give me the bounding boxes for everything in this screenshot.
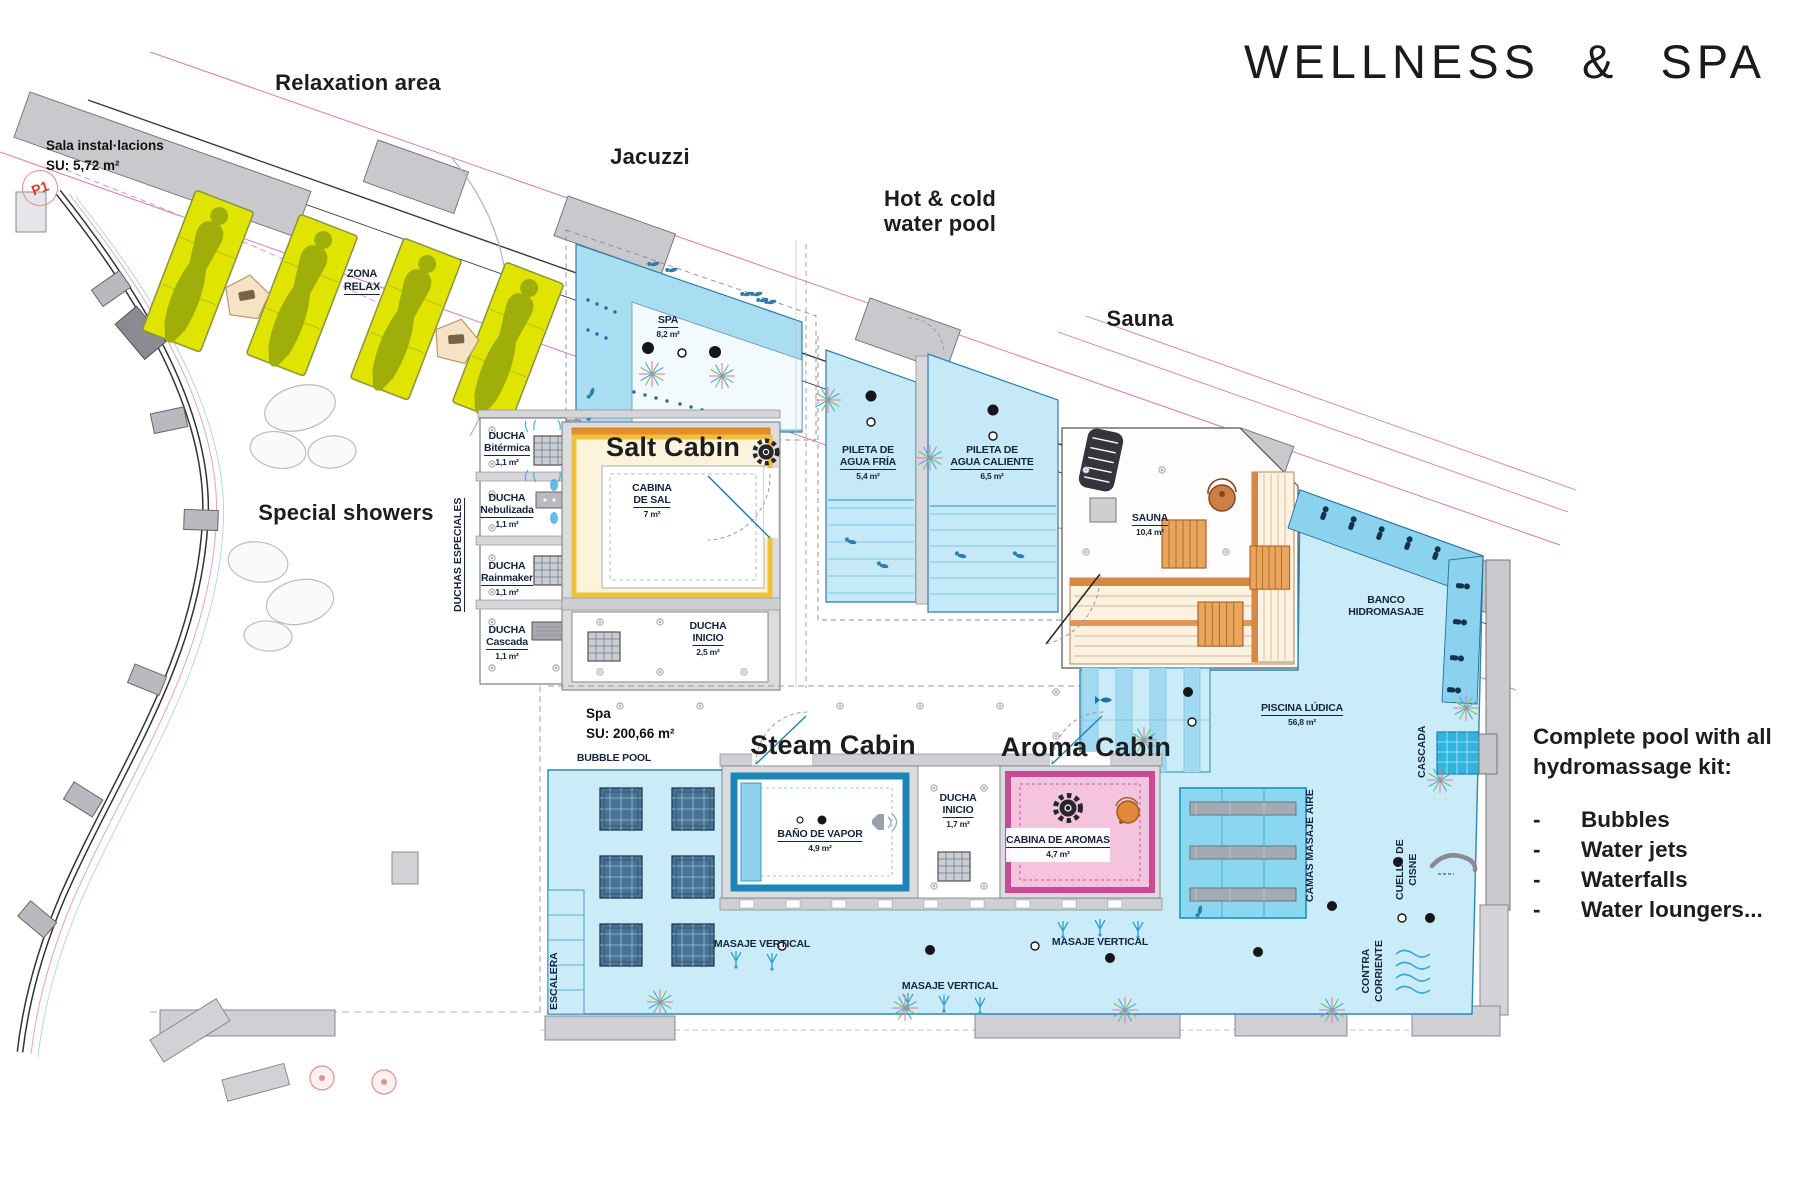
label-ducha-rainmaker: DUCHA Rainmaker 1,1 m² xyxy=(481,560,533,597)
ducha-inicio-room xyxy=(918,766,1000,898)
label-sauna: Sauna xyxy=(1106,306,1173,331)
label-ducha-cascada: DUCHA Cascada 1,1 m² xyxy=(486,624,528,661)
list-item: -Waterfalls xyxy=(1533,865,1772,895)
page-title: WELLNESS & SPA xyxy=(1244,34,1766,89)
label-contra-corriente: CONTRA CORRIENTE xyxy=(1360,940,1385,1002)
label-sauna-room: SAUNA 10,4 m² xyxy=(1132,512,1168,537)
list-item: -Water jets xyxy=(1533,835,1772,865)
floor-plan-drawing xyxy=(0,0,1800,1200)
sauna-room xyxy=(1046,427,1298,668)
label-zona-relax: ZONA RELAX xyxy=(344,268,380,295)
label-aroma-cabin: Aroma Cabin xyxy=(1001,732,1171,763)
label-escalera: ESCALERA xyxy=(548,952,561,1010)
label-piscina-ludica: PISCINA LÚDICA 56,8 m² xyxy=(1261,702,1343,727)
label-ducha-nebulizada: DUCHA Nebulizada 1,1 m² xyxy=(480,492,533,529)
label-camas-masaje-aire: CAMAS MASAJE AIRE xyxy=(1304,789,1317,902)
label-bubble-pool: BUBBLE POOL xyxy=(577,752,651,764)
label-cabina-sal: CABINA DE SAL 7 m² xyxy=(632,482,672,519)
label-ducha-inicio-steam: DUCHA INICIO 1,7 m² xyxy=(940,792,977,829)
label-spa-tub: SPA 8,2 m² xyxy=(656,314,679,339)
jacuzzi-pool xyxy=(566,230,816,440)
floor-plan-page: WELLNESS & SPA Relaxation area Jacuzzi H… xyxy=(0,0,1800,1200)
label-banco-hidromasaje: BANCO HIDROMASAJE xyxy=(1348,594,1423,618)
label-masaje-vertical-3: MASAJE VERTICAL xyxy=(902,980,998,992)
label-jacuzzi: Jacuzzi xyxy=(610,144,690,169)
pool-features-callout: Complete pool with all hydromassage kit:… xyxy=(1533,722,1772,925)
label-spa-zone: Spa SU: 200,66 m² xyxy=(586,704,675,745)
label-masaje-vertical-1: MASAJE VERTICAL xyxy=(714,938,810,950)
label-sala-installacions: Sala instal·lacions SU: 5,72 m² xyxy=(46,136,164,177)
label-masaje-vertical-2: MASAJE VERTICAL xyxy=(1052,936,1148,948)
label-hot-cold-pool: Hot & cold water pool xyxy=(884,186,996,237)
label-relaxation-area: Relaxation area xyxy=(275,70,441,95)
label-cabina-aromas: CABINA DE AROMAS 4,7 m² xyxy=(1006,834,1110,859)
list-item: -Bubbles xyxy=(1533,805,1772,835)
label-cascada: CASCADA xyxy=(1416,726,1429,779)
label-duchas-especiales: DUCHAS ESPECIALES xyxy=(452,498,465,612)
list-item: -Water loungers... xyxy=(1533,895,1772,925)
label-special-showers: Special showers xyxy=(258,500,433,525)
label-steam-cabin: Steam Cabin xyxy=(750,730,916,761)
label-ducha-inicio-salt: DUCHA INICIO 2,5 m² xyxy=(690,620,727,657)
sauna-bucket-icon xyxy=(1209,485,1235,511)
label-pileta-caliente: PILETA DE AGUA CALIENTE 6,5 m² xyxy=(950,444,1033,481)
aroma-kettle-icon xyxy=(1117,801,1139,823)
label-ducha-bitermica: DUCHA Bitérmica 1,1 m² xyxy=(484,430,530,467)
label-salt-cabin: Salt Cabin xyxy=(606,432,740,463)
label-bano-vapor: BAÑO DE VAPOR 4,9 m² xyxy=(777,828,862,853)
label-cuello-de-cisne: CUELLO DE CISNE xyxy=(1394,839,1419,900)
waterfall-feature xyxy=(1437,732,1479,774)
label-pileta-fria: PILETA DE AGUA FRÍA 5,4 m² xyxy=(840,444,896,481)
